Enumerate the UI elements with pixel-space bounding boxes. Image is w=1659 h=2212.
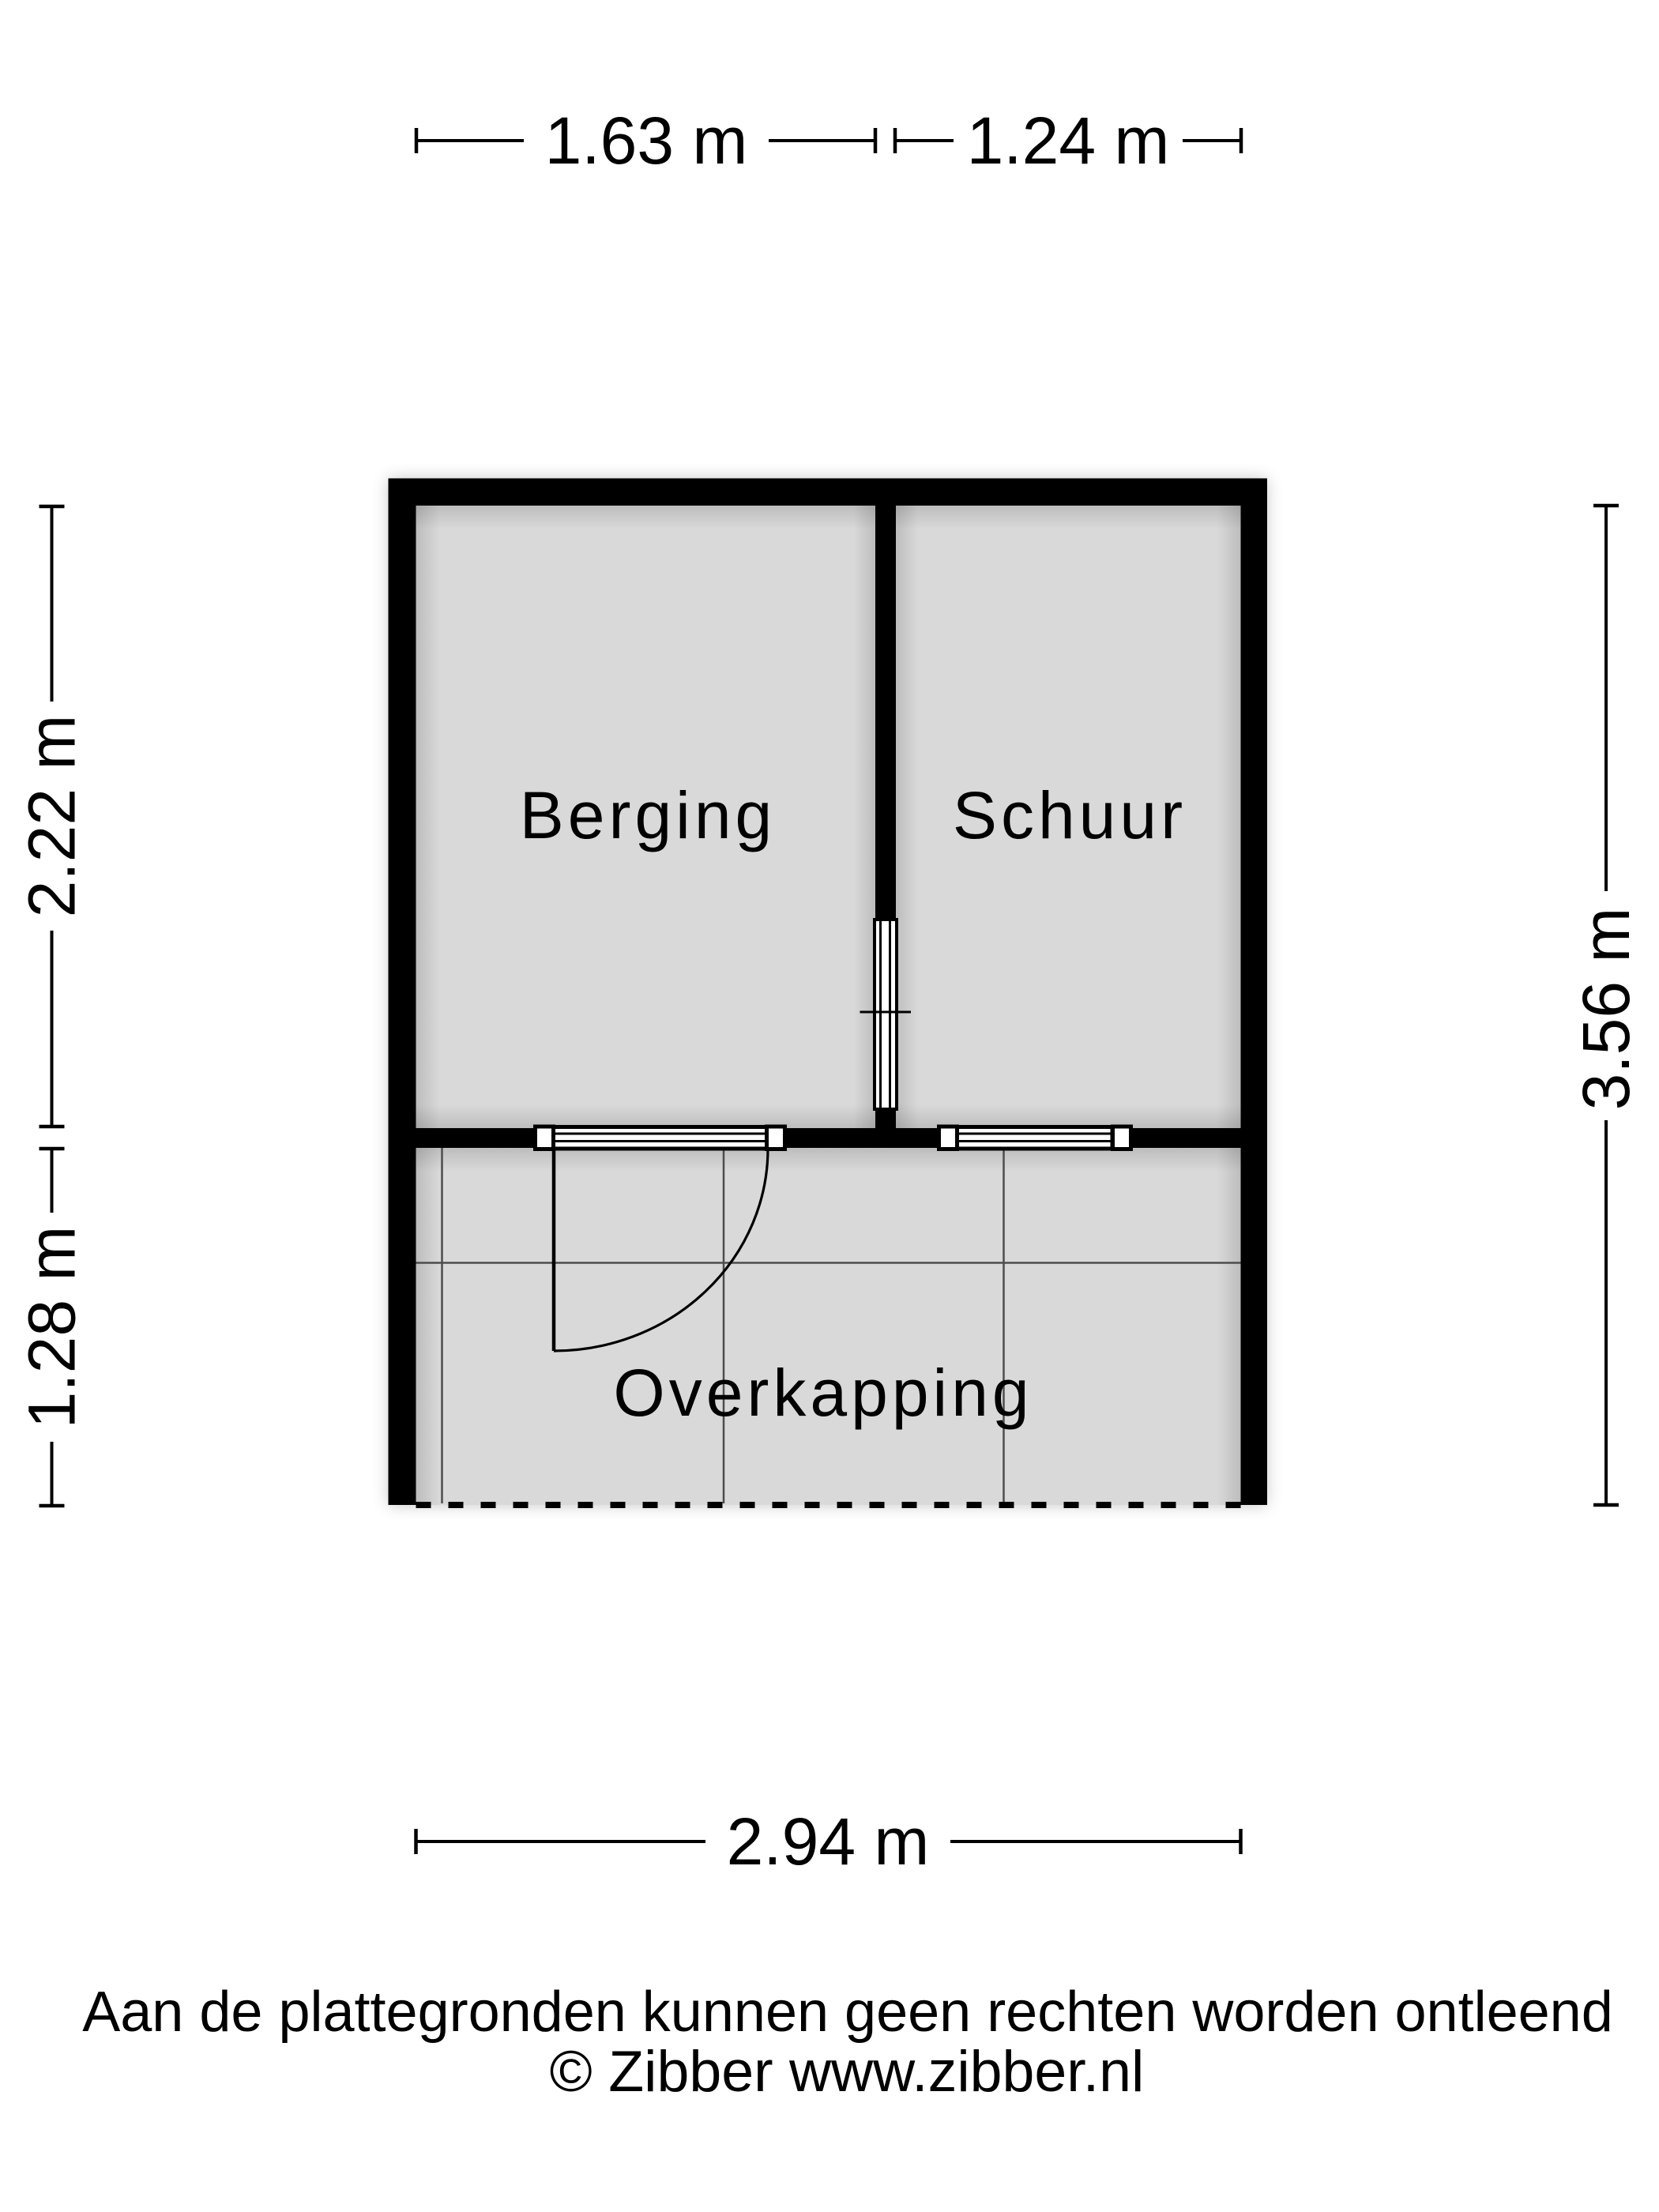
svg-text:1.28 m: 1.28 m [15,1226,89,1429]
svg-text:1.24 m: 1.24 m [967,103,1170,178]
svg-text:Overkapping: Overkapping [613,1356,1033,1430]
svg-text:3.56 m: 3.56 m [1569,908,1643,1111]
svg-text:2.22 m: 2.22 m [15,715,89,918]
svg-text:© Zibber www.zibber.nl: © Zibber www.zibber.nl [550,2038,1145,2104]
svg-text:1.63 m: 1.63 m [545,103,748,178]
svg-text:Schuur: Schuur [953,778,1187,852]
svg-text:Aan de plattegronden kunnen ge: Aan de plattegronden kunnen geen rechten… [82,1981,1613,2044]
svg-text:2.94 m: 2.94 m [727,1804,930,1879]
svg-text:Berging: Berging [520,778,777,852]
